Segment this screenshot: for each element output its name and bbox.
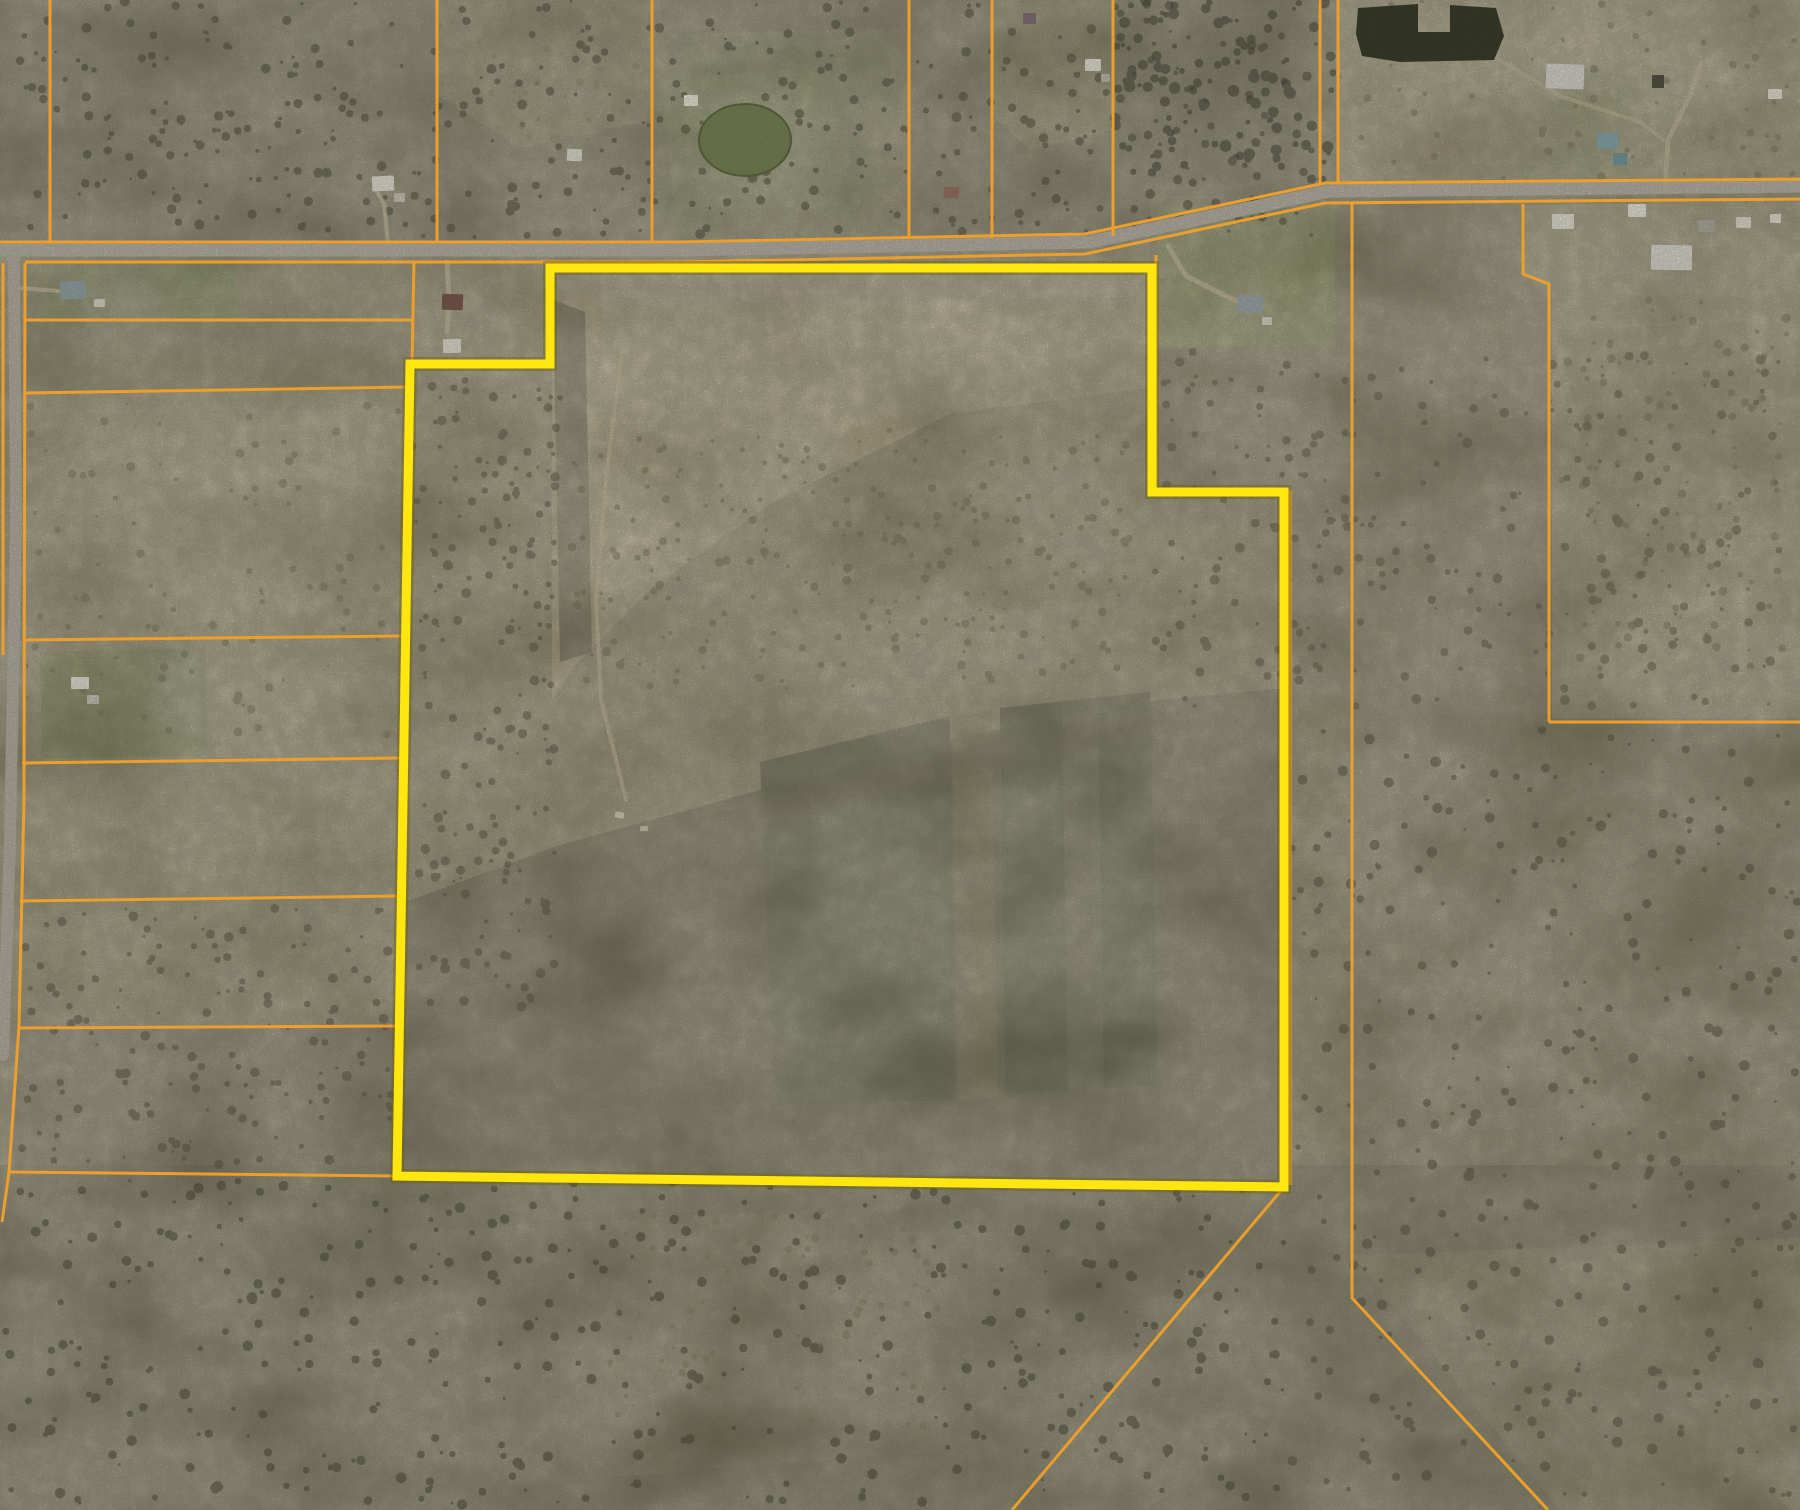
aerial-parcel-map[interactable] [0, 0, 1800, 1510]
parcel-boundary-line [412, 262, 414, 364]
map-viewport[interactable] [0, 0, 1800, 1510]
parcel-boundary-line [19, 1026, 395, 1028]
grain-noise [0, 0, 1800, 1510]
